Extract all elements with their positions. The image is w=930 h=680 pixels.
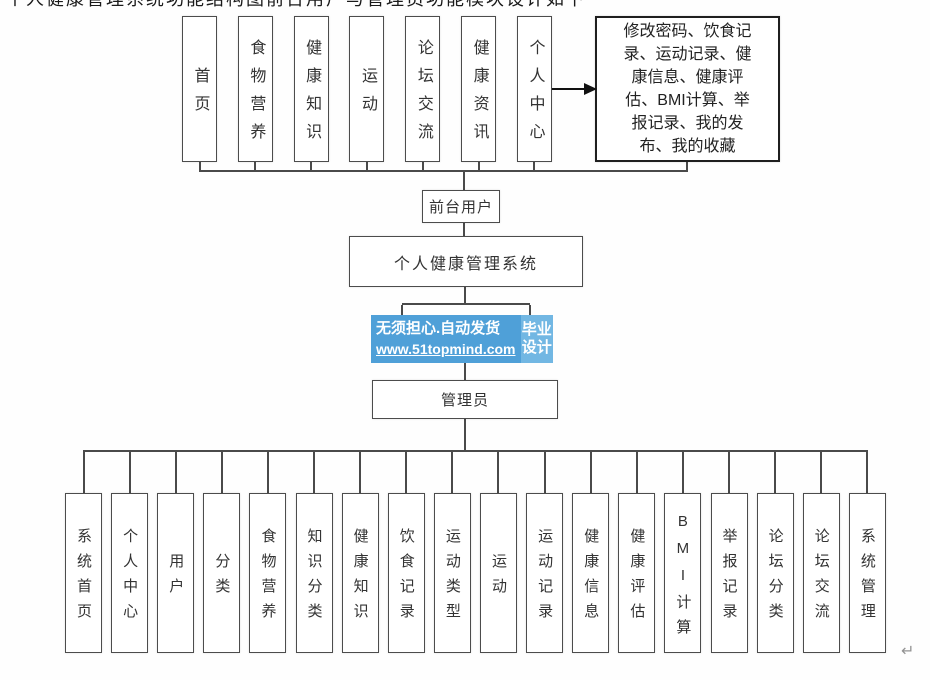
node-label: 运动记录 (534, 528, 555, 628)
node-label: 运动 (488, 553, 509, 603)
node-health-news: 健康资讯 (461, 16, 496, 162)
backend-module-cell: 食物营养 (249, 450, 286, 653)
node-health-knowledge: 健康知识 (294, 16, 329, 162)
connector-stub (129, 450, 131, 493)
node-label: 用户 (165, 553, 186, 603)
backend-module-cell: 运动类型 (434, 450, 471, 653)
branch-line (402, 303, 530, 305)
backend-module-cell: 举报记录 (711, 450, 748, 653)
backend-module-cell: 知识分类 (296, 450, 333, 653)
connector-stub (83, 450, 85, 493)
connector-stub (310, 162, 312, 171)
backend-module-cell: 用户 (157, 450, 194, 653)
connector-stub (728, 450, 730, 493)
node-label: 论坛分类 (765, 528, 786, 628)
watermark: 无须担心.自动发货 www.51topmind.com 毕业 设计 (371, 315, 553, 363)
backend-module-cell: 健康信息 (572, 450, 609, 653)
node-label: 分类 (211, 553, 232, 603)
backend-module-cell: 系统首页 (65, 450, 102, 653)
node-health-knowledge-admin: 健康知识 (342, 493, 379, 653)
node-sport-type: 运动类型 (434, 493, 471, 653)
node-label: 健康评估 (626, 528, 647, 628)
detail-box-connector (686, 162, 688, 170)
node-label: 首页 (188, 67, 212, 123)
node-health-assessment: 健康评估 (618, 493, 655, 653)
connector-stub (267, 450, 269, 493)
node-label: 系统管理 (857, 528, 878, 628)
connector-stub (405, 450, 407, 493)
connector-stub (533, 162, 535, 171)
node-forum: 论坛交流 (405, 16, 440, 162)
paragraph-return-mark: ↵ (901, 641, 914, 661)
connector-stub (590, 450, 592, 493)
frontend-module-cell: 论坛交流 (405, 16, 440, 171)
node-forum-category: 论坛分类 (757, 493, 794, 653)
node-health-info: 健康信息 (572, 493, 609, 653)
watermark-to-admin-connector (464, 363, 466, 380)
connector-stub (422, 162, 424, 171)
node-bmi-calc: BMI计算 (664, 493, 701, 653)
frontend-module-cell: 首页 (182, 16, 217, 171)
connector-stub (478, 162, 480, 171)
connector-stub (366, 162, 368, 171)
node-sport-admin: 运动 (480, 493, 517, 653)
node-label: 论坛交流 (411, 39, 435, 151)
connector-stub (313, 450, 315, 493)
node-system-home: 系统首页 (65, 493, 102, 653)
connector-stub (544, 450, 546, 493)
node-label: 知识分类 (304, 528, 325, 628)
diagram-canvas: 个人健康管理系统功能结构图前台用户与管理员功能模块设计如下 首页 食物营养 健康… (0, 0, 930, 680)
frontend-module-cell: 运动 (349, 16, 384, 171)
node-report-records: 举报记录 (711, 493, 748, 653)
frontend-module-cell: 健康资讯 (461, 16, 496, 171)
arrow-head-icon (584, 83, 597, 95)
frontend-role-label: 前台用户 (429, 196, 493, 217)
node-sport: 运动 (349, 16, 384, 162)
node-label: 论坛交流 (811, 528, 832, 628)
node-label: 食物营养 (243, 39, 267, 151)
backend-modules-row: 系统首页 个人中心 用户 分类 食物营养 知识分类 健康知识 饮食记录 (65, 450, 886, 653)
backend-module-cell: 个人中心 (111, 450, 148, 653)
node-home: 首页 (182, 16, 217, 162)
backend-module-cell: 运动 (480, 450, 517, 653)
node-label: 系统首页 (73, 528, 94, 628)
watermark-main: 无须担心.自动发货 www.51topmind.com (371, 315, 521, 363)
connector-stub (636, 450, 638, 493)
admin-down-connector (464, 419, 466, 450)
connector-stub (254, 162, 256, 171)
admin-role-label: 管理员 (441, 389, 489, 410)
node-forum-admin: 论坛交流 (803, 493, 840, 653)
backend-module-cell: 健康知识 (342, 450, 379, 653)
frontend-module-cell: 健康知识 (294, 16, 329, 171)
backend-module-cell: 论坛交流 (803, 450, 840, 653)
admin-role-box: 管理员 (372, 380, 558, 419)
node-label: 饮食记录 (396, 528, 417, 628)
node-food-nutrition: 食物营养 (238, 16, 273, 162)
node-label: 个人中心 (119, 528, 140, 628)
node-label: 健康信息 (580, 528, 601, 628)
node-users: 用户 (157, 493, 194, 653)
node-knowledge-category: 知识分类 (296, 493, 333, 653)
connector-stub (451, 450, 453, 493)
backend-module-cell: 分类 (203, 450, 240, 653)
user-to-system-connector (463, 223, 465, 236)
watermark-url: www.51topmind.com (376, 339, 516, 359)
system-down-connector (464, 287, 466, 303)
node-label: BMI计算 (672, 513, 693, 644)
backend-module-cell: 健康评估 (618, 450, 655, 653)
node-diet-records: 饮食记录 (388, 493, 425, 653)
backend-module-cell: BMI计算 (664, 450, 701, 653)
connector-stub (199, 162, 201, 171)
node-label: 食物营养 (257, 528, 278, 628)
node-personal-center-admin: 个人中心 (111, 493, 148, 653)
node-food-nutrition-admin: 食物营养 (249, 493, 286, 653)
connector-stub (221, 450, 223, 493)
watermark-slogan: 无须担心.自动发货 (376, 319, 516, 339)
system-title-box: 个人健康管理系统 (349, 236, 583, 287)
backend-module-cell: 饮食记录 (388, 450, 425, 653)
node-sport-records: 运动记录 (526, 493, 563, 653)
connector-stub (497, 450, 499, 493)
node-label: 运动 (355, 67, 379, 123)
backend-module-cell: 论坛分类 (757, 450, 794, 653)
connector-stub (866, 450, 868, 493)
arrow-line (552, 88, 585, 90)
node-label: 运动类型 (442, 528, 463, 628)
connector-stub (175, 450, 177, 493)
frontend-module-cell: 个人中心 (517, 16, 552, 171)
connector-stub (682, 450, 684, 493)
backend-module-cell: 系统管理 (849, 450, 886, 653)
node-label: 健康知识 (299, 39, 323, 151)
node-label: 健康知识 (350, 528, 371, 628)
personal-center-detail-box: 修改密码、饮食记 录、运动记录、健 康信息、健康评 估、BMI计算、举 报记录、… (595, 16, 780, 162)
frontend-role-box: 前台用户 (422, 190, 500, 223)
clipped-text-line: 个人健康管理系统功能结构图前台用户与管理员功能模块设计如下 (6, 0, 586, 11)
bus-to-user-connector (463, 172, 465, 190)
frontend-modules-row: 首页 食物营养 健康知识 运动 论坛交流 健康资讯 个人中心 (182, 16, 552, 171)
watermark-badge: 毕业 设计 (521, 315, 554, 363)
node-label: 健康资讯 (467, 39, 491, 151)
connector-stub (774, 450, 776, 493)
node-categories: 分类 (203, 493, 240, 653)
node-personal-center: 个人中心 (517, 16, 552, 162)
frontend-module-cell: 食物营养 (238, 16, 273, 171)
node-label: 个人中心 (522, 39, 546, 151)
connector-stub (359, 450, 361, 493)
connector-stub (820, 450, 822, 493)
node-label: 举报记录 (719, 528, 740, 628)
system-title-label: 个人健康管理系统 (394, 250, 538, 274)
backend-module-cell: 运动记录 (526, 450, 563, 653)
node-system-admin: 系统管理 (849, 493, 886, 653)
